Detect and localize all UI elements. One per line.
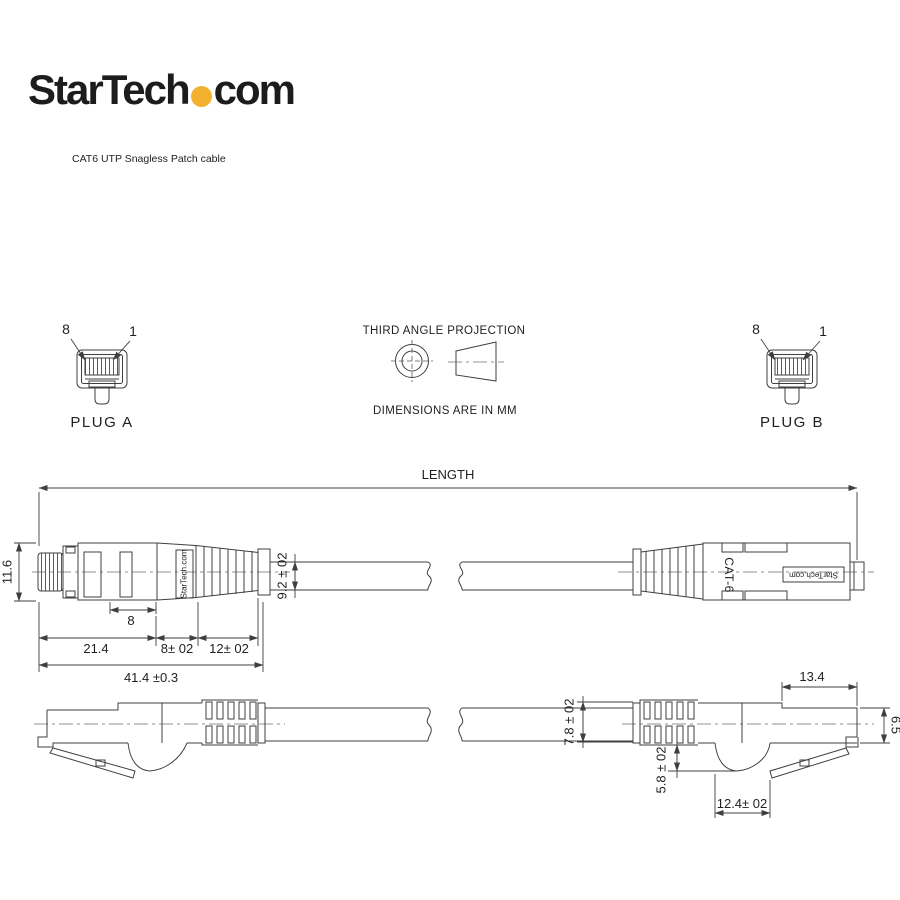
plug-b-brand-text: StarTech.com	[789, 570, 838, 579]
cable-bottom-left	[265, 708, 428, 741]
top-view: StarTech.com CAT-6 StarTech.com	[0, 543, 874, 685]
boot-a-ribs	[196, 546, 252, 598]
svg-text:8: 8	[127, 613, 134, 628]
plug-a-front-notch-top	[66, 547, 75, 553]
boot-a-taper	[157, 543, 258, 600]
boot-a-rib-slots	[206, 702, 256, 743]
cable-top-right	[462, 562, 633, 590]
plug-a-profile-body	[38, 703, 202, 747]
dim-tip-length: 13.4	[782, 669, 857, 706]
boot-b-rib-box	[640, 700, 698, 745]
plug-a-body-window2	[120, 552, 132, 597]
plug-b-pin1-label: 1	[819, 323, 827, 339]
plug-b-pin8-label: 8	[752, 321, 760, 337]
plug-b-contacts	[775, 358, 809, 375]
boot-b-ribs	[646, 545, 694, 598]
boot-a-brand-text: StarTech.com	[180, 549, 189, 598]
plug-b-tip	[850, 562, 864, 590]
dim-cable-od-top: 9.2 ± 02	[274, 553, 295, 600]
cable-break-right	[459, 562, 463, 590]
plug-a-pin1-label: 1	[129, 323, 137, 339]
plug-a-latch-tab	[95, 387, 109, 404]
svg-text:9.2 ± 02: 9.2 ± 02	[274, 553, 289, 600]
plug-b-latch-tab	[785, 387, 799, 404]
svg-text:11.6: 11.6	[0, 560, 14, 584]
svg-text:8± 02: 8± 02	[161, 641, 193, 656]
length-label: LENGTH	[422, 467, 475, 482]
cable-top-left	[270, 562, 428, 590]
boot-a-profile-endcap	[258, 703, 265, 743]
plug-a-body-window1	[84, 552, 101, 597]
boot-b-profile-endcap	[633, 703, 640, 743]
projection-note: DIMENSIONS ARE IN MM	[373, 405, 517, 417]
plug-b-cat6-text: CAT-6	[722, 557, 736, 593]
cable-break-left-2	[427, 708, 431, 741]
plug-b-profile-body	[698, 703, 858, 747]
technical-drawing: 8 1 PLUG A 8 1 PLUG B THIRD ANGLE PROJEC…	[0, 0, 900, 900]
dim-plug-body: 21.4 8± 02 12± 02	[39, 598, 258, 672]
dim-hump-length: 12.4± 02	[715, 774, 770, 818]
plug-b-label: PLUG B	[760, 414, 824, 431]
boot-a-hump	[128, 743, 187, 771]
plug-a-latch-lever	[50, 748, 135, 778]
plug-b-notch-bottom2	[745, 591, 787, 600]
plug-a-front-notch-bottom	[66, 591, 75, 597]
projection-title: THIRD ANGLE PROJECTION	[363, 325, 526, 337]
side-view: 7.8 ± 02 5.8 ± 02 12.4± 02 13.4	[34, 669, 900, 818]
plug-a-label: PLUG A	[70, 414, 133, 431]
boot-b-rib-slots	[644, 702, 694, 743]
dim-cable-od-side: 7.8 ± 02	[561, 696, 633, 748]
svg-text:21.4: 21.4	[83, 641, 108, 656]
cable-break-right-2	[459, 708, 463, 741]
boot-b-hump	[715, 743, 770, 771]
svg-text:12.4± 02: 12.4± 02	[717, 796, 768, 811]
plug-b-notch-top2	[745, 543, 787, 552]
cable-break-left	[427, 562, 431, 590]
plug-a-view: 8 1 PLUG A	[62, 321, 137, 431]
svg-text:12± 02: 12± 02	[209, 641, 249, 656]
plug-a-contacts	[85, 358, 119, 375]
dim-plug-height: 11.6	[0, 543, 36, 601]
plug-a-tip-contacts	[38, 553, 63, 591]
projection-cone	[456, 342, 496, 381]
svg-text:13.4: 13.4	[799, 669, 824, 684]
dim-window: 8	[110, 602, 156, 628]
dim-tip-height: 6.5	[860, 708, 900, 743]
svg-text:6.5: 6.5	[889, 716, 900, 734]
length-dimension: LENGTH	[39, 467, 857, 560]
svg-text:7.8 ± 02: 7.8 ± 02	[561, 699, 576, 746]
plug-b-view: 8 1 PLUG B	[752, 321, 827, 431]
projection-symbol: THIRD ANGLE PROJECTION DIMENSIONS ARE IN…	[363, 325, 526, 417]
plug-a-pin8-label: 8	[62, 321, 70, 337]
svg-text:5.8 ± 02: 5.8 ± 02	[653, 747, 668, 794]
plug-b-notch-top1	[722, 543, 743, 552]
dim-hump-depth: 5.8 ± 02	[653, 740, 736, 793]
svg-text:41.4 ±0.3: 41.4 ±0.3	[124, 670, 178, 685]
cable-bottom-right	[462, 708, 633, 741]
